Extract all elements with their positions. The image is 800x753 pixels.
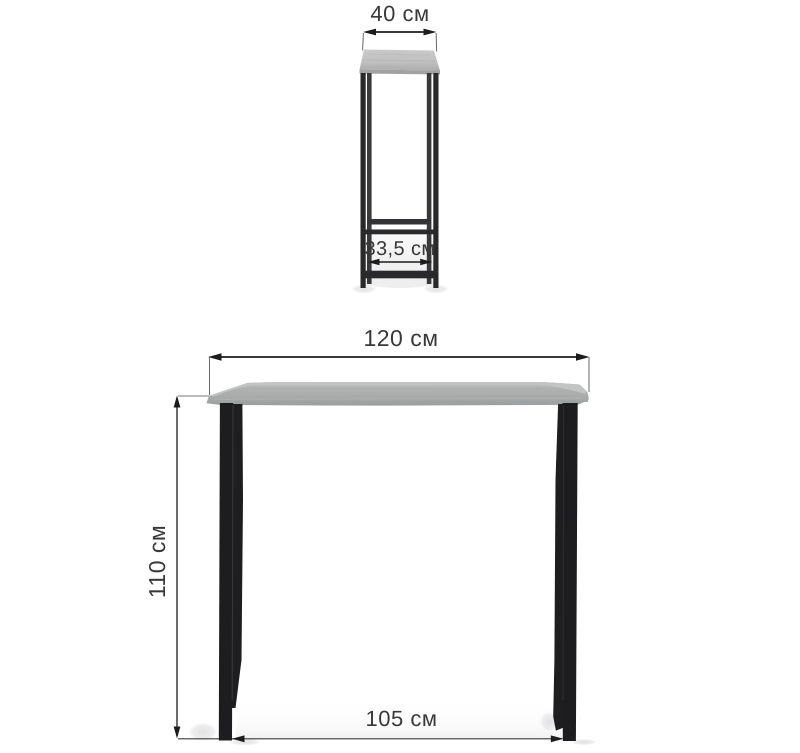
svg-text:105 см: 105 см [366, 706, 438, 731]
svg-text:120 см: 120 см [363, 325, 438, 351]
svg-text:40 см: 40 см [370, 1, 429, 26]
svg-text:110 см: 110 см [144, 525, 170, 598]
svg-text:33,5 см: 33,5 см [364, 238, 435, 260]
